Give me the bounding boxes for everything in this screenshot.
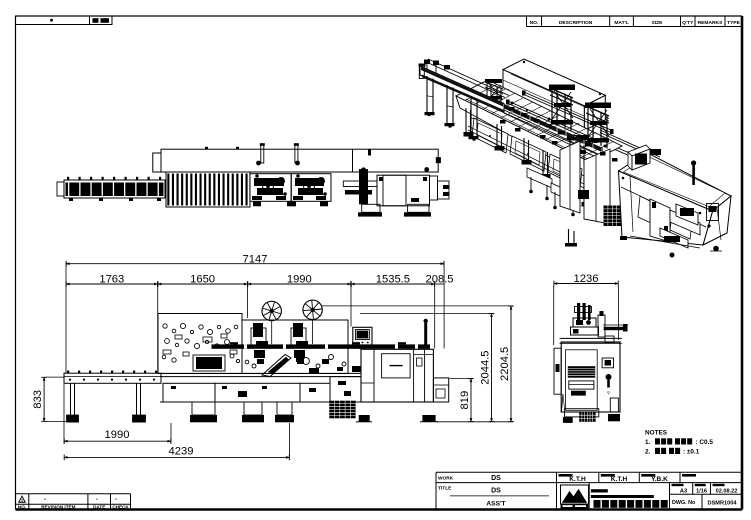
svg-text:1236: 1236 [574, 273, 599, 285]
svg-text:K.T.H: K.T.H [611, 476, 628, 483]
svg-text:1/16: 1/16 [696, 489, 707, 495]
svg-text:-: - [44, 497, 46, 503]
svg-text:Q'TY: Q'TY [682, 20, 694, 26]
svg-text:DS: DS [491, 488, 501, 495]
svg-text:NOTES: NOTES [645, 430, 668, 437]
svg-text:208.5: 208.5 [426, 273, 454, 285]
svg-text:819: 819 [459, 391, 471, 410]
svg-text:DATE: DATE [93, 504, 105, 509]
svg-text:1990: 1990 [105, 429, 130, 441]
svg-text:1535.5: 1535.5 [376, 273, 410, 285]
svg-text:A3: A3 [680, 489, 687, 495]
svg-text:TITLE: TITLE [438, 486, 452, 492]
svg-text:DESCRIPTION: DESCRIPTION [559, 20, 593, 26]
svg-text:MAT'L: MAT'L [614, 20, 628, 26]
svg-text:2.: 2. [645, 449, 651, 456]
svg-text:1990: 1990 [287, 273, 312, 285]
svg-text:1.: 1. [645, 439, 651, 446]
svg-text:-: - [96, 497, 98, 503]
svg-text:7147: 7147 [243, 253, 268, 265]
svg-text:SIZE: SIZE [652, 20, 664, 26]
svg-text:1650: 1650 [190, 273, 215, 285]
svg-text:-: - [115, 497, 117, 503]
svg-text:2204.5: 2204.5 [499, 347, 511, 381]
svg-text:CHECK: CHECK [112, 504, 129, 509]
svg-text:02.08.22: 02.08.22 [716, 489, 738, 495]
svg-text:WORK: WORK [438, 475, 454, 481]
svg-text:1763: 1763 [99, 273, 124, 285]
svg-text:: C0.5: : C0.5 [696, 439, 714, 446]
svg-text:Y.B.K: Y.B.K [651, 476, 668, 483]
svg-text:⚲: ⚲ [607, 390, 610, 395]
svg-text:DSMR1004: DSMR1004 [708, 501, 738, 507]
svg-text:K.T.H: K.T.H [569, 476, 586, 483]
svg-text:NO.: NO. [530, 20, 539, 26]
svg-text:REVISION ITEM: REVISION ITEM [41, 504, 75, 509]
svg-text:2044.5: 2044.5 [480, 350, 492, 384]
svg-text:DWG. No: DWG. No [672, 500, 696, 506]
svg-text:NO.: NO. [18, 504, 26, 509]
svg-text:DS: DS [491, 475, 501, 482]
svg-text:ASS'T: ASS'T [486, 501, 505, 508]
svg-text:REMARKS: REMARKS [698, 20, 723, 26]
svg-text:833: 833 [32, 390, 44, 409]
svg-text:TYPE: TYPE [727, 20, 741, 26]
svg-text:4239: 4239 [169, 445, 194, 457]
svg-text:: ±0.1: : ±0.1 [683, 449, 700, 456]
